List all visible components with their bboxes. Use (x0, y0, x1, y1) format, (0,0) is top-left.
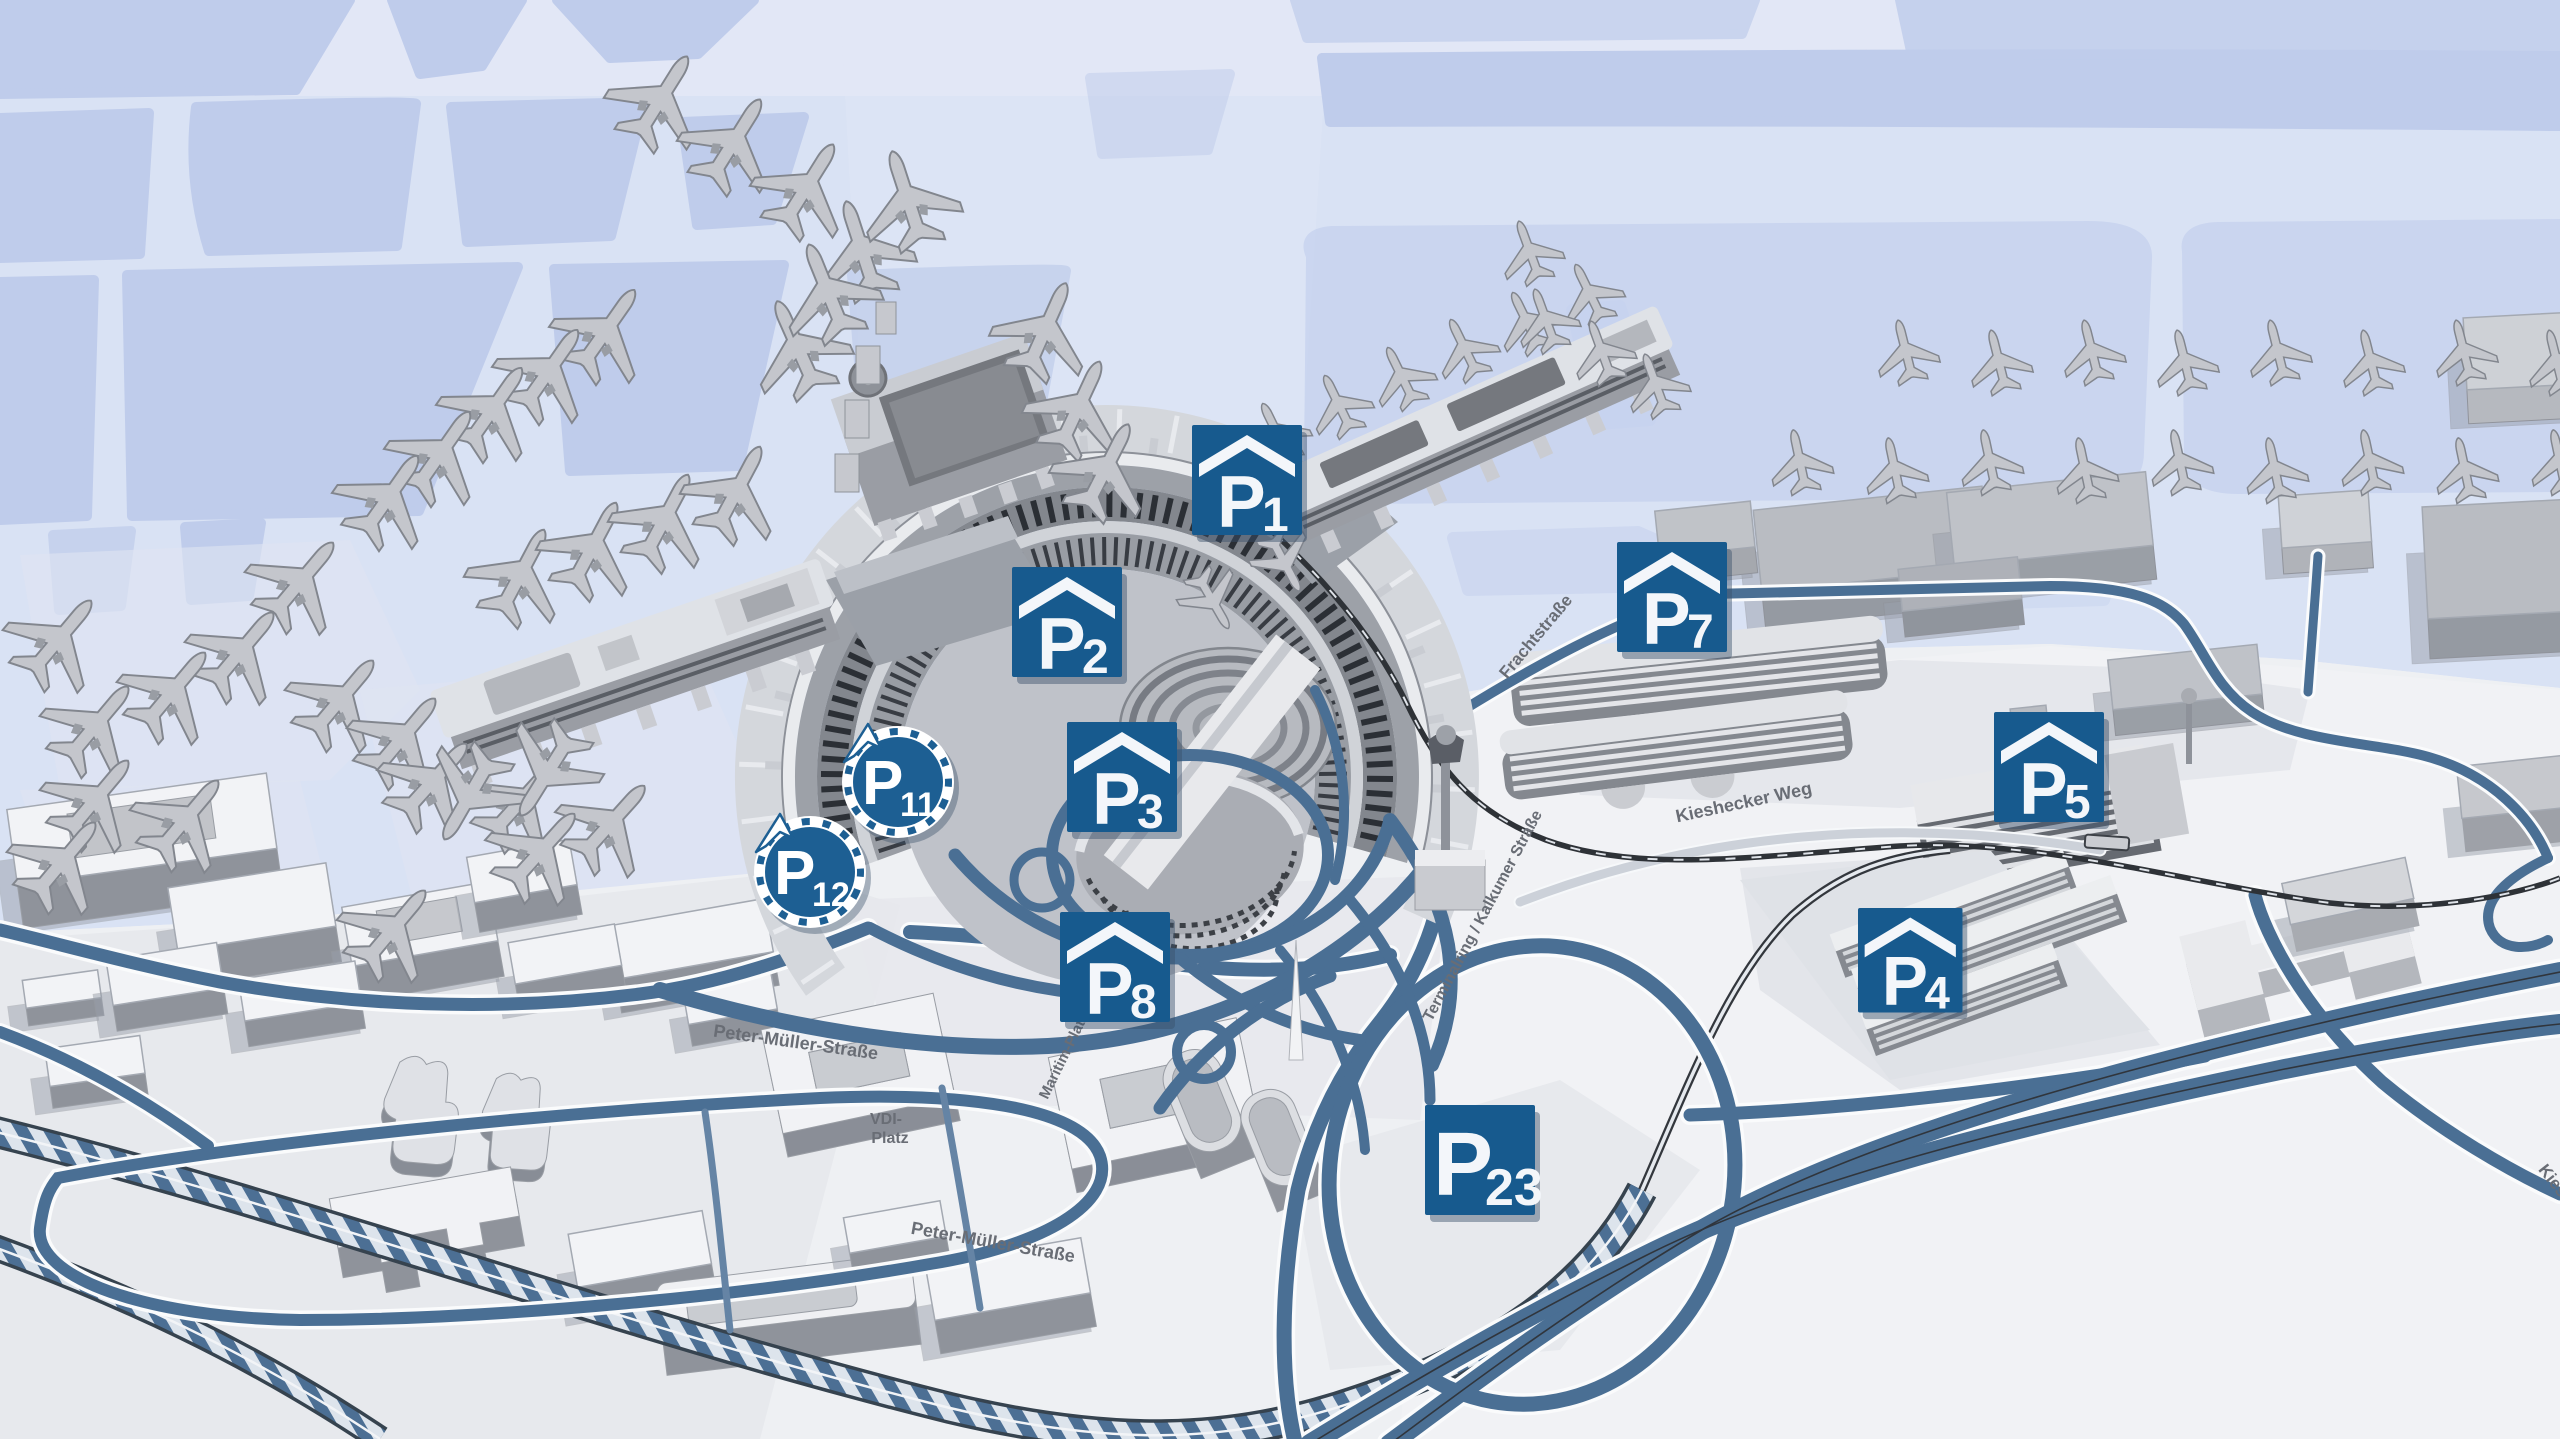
svg-text:P: P (774, 839, 815, 908)
svg-text:8: 8 (1130, 976, 1157, 1029)
svg-text:4: 4 (1925, 968, 1951, 1019)
svg-text:VDI-: VDI- (870, 1111, 902, 1128)
svg-text:7: 7 (1687, 606, 1714, 659)
svg-text:12: 12 (812, 876, 850, 914)
svg-text:P: P (1092, 759, 1141, 840)
svg-text:P: P (1217, 462, 1266, 543)
svg-text:11: 11 (900, 786, 936, 824)
svg-text:Platz: Platz (871, 1130, 908, 1147)
svg-text:2: 2 (1082, 631, 1109, 684)
svg-text:3: 3 (1137, 786, 1164, 839)
svg-text:1: 1 (1262, 489, 1289, 542)
svg-text:P: P (1037, 604, 1086, 685)
svg-text:P: P (1085, 949, 1134, 1030)
svg-text:23: 23 (1485, 1159, 1543, 1217)
svg-text:P: P (2019, 749, 2068, 830)
svg-text:5: 5 (2064, 776, 2091, 829)
svg-text:P: P (1882, 942, 1928, 1020)
svg-text:P: P (1642, 579, 1691, 660)
svg-text:P: P (862, 749, 903, 818)
